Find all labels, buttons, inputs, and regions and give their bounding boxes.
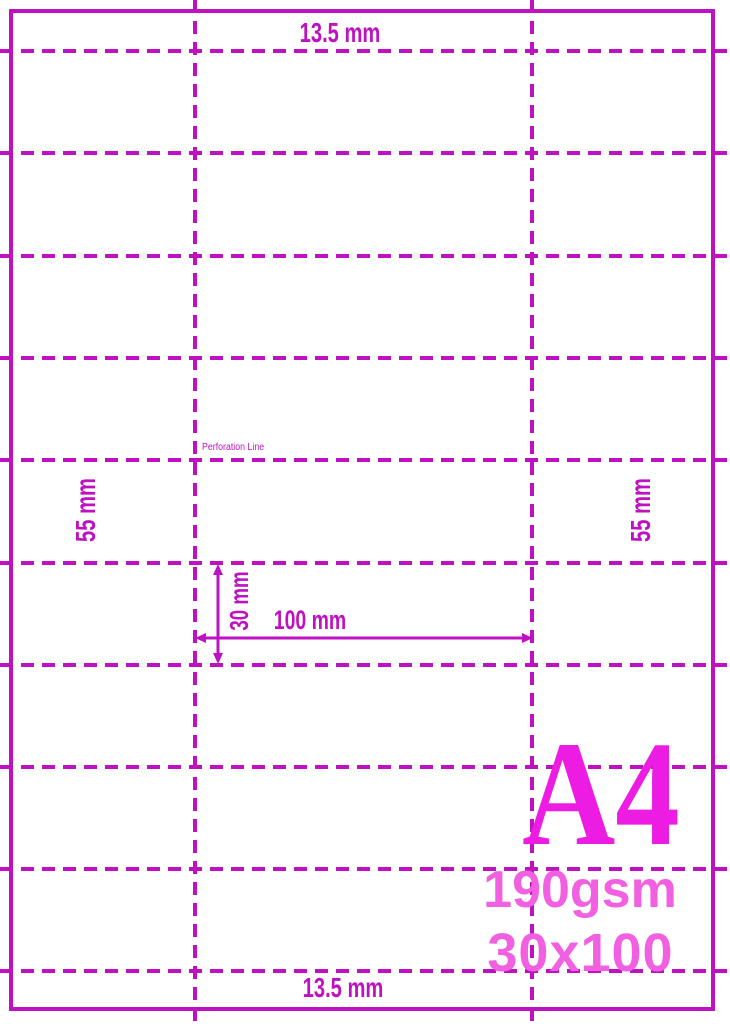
height-arrow-icon — [213, 564, 223, 664]
perforation-line-horizontal — [0, 254, 730, 258]
width-arrow-icon — [195, 633, 533, 643]
perforation-line-horizontal — [0, 49, 730, 53]
left-strip-width-label: 55 mm — [72, 467, 100, 553]
paper-weight-badge: 190gsm — [480, 864, 680, 916]
perforation-line-horizontal — [0, 151, 730, 155]
dimension-arrows-icon — [190, 555, 540, 670]
perforation-line-caption: Perforation Line — [202, 442, 264, 454]
label-dimensions-badge: 30x100 — [478, 926, 683, 980]
a4-perforation-template: 13.5 mm 13.5 mm 55 mm 55 mm 30 mm 100 mm… — [0, 0, 730, 1024]
top-margin-label: 13.5 mm — [282, 19, 397, 47]
perforation-line-horizontal — [0, 458, 730, 462]
bottom-margin-label: 13.5 mm — [285, 974, 400, 1002]
paper-size-badge: A4 — [512, 719, 689, 869]
perforation-line-vertical — [193, 0, 197, 1024]
right-strip-width-label: 55 mm — [627, 467, 655, 553]
perforation-line-horizontal — [0, 356, 730, 360]
